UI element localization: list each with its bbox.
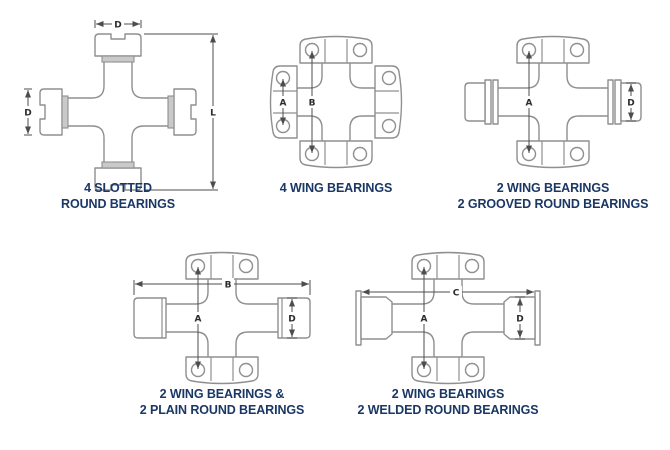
groove-ring: [608, 80, 613, 124]
weld-flange-left: [356, 291, 361, 345]
slotted-cup-right: [174, 89, 196, 135]
bolt-hole: [571, 44, 584, 57]
caption-line: 4 SLOTTED: [18, 180, 218, 196]
bolt-hole: [383, 120, 396, 133]
dim-label-cup-diameter: D: [516, 315, 523, 325]
bolt-hole: [466, 364, 479, 377]
drawing-4-slotted-round-bearings: D D L: [13, 17, 223, 195]
caption-4-wing-bearings: 4 WING BEARINGS: [236, 180, 436, 196]
groove-ring: [615, 80, 621, 124]
drawing-2-wing-2-plain-round-bearings: B A D: [117, 223, 327, 401]
figure-4-slotted-round-bearings: D D L: [13, 17, 223, 195]
plain-cup-left: [134, 298, 166, 338]
caption-line: 2 WELDED ROUND BEARINGS: [338, 402, 558, 418]
slotted-cup-left: [40, 89, 62, 135]
groove-ring: [485, 80, 491, 124]
cup-lip-top: [102, 56, 134, 62]
cup-lip-right: [168, 96, 174, 128]
dim-label-hole-span: A: [421, 315, 428, 325]
caption-line: ROUND BEARINGS: [18, 196, 218, 212]
dim-label-top-width: D: [114, 21, 121, 31]
dim-label-overall-length: L: [210, 109, 216, 119]
grooved-cup-left: [465, 83, 485, 121]
weld-flange-right: [535, 291, 540, 345]
caption-line: 2 WING BEARINGS: [443, 180, 663, 196]
cross-body: [60, 54, 176, 170]
dim-label-vertical-span: B: [309, 99, 316, 109]
drawing-4-wing-bearings: A B: [231, 7, 441, 185]
caption-2-wing-2-grooved-round-bearings: 2 WING BEARINGS 2 GROOVED ROUND BEARINGS: [443, 180, 663, 212]
caption-2-wing-2-welded-round-bearings: 2 WING BEARINGS 2 WELDED ROUND BEARINGS: [338, 386, 558, 418]
caption-line: 2 WING BEARINGS &: [112, 386, 332, 402]
dim-label-cup-diameter: D: [288, 315, 295, 325]
welded-cup-left: [361, 297, 392, 339]
figure-4-wing-bearings: A B: [231, 7, 441, 185]
bolt-hole: [240, 260, 253, 273]
caption-line: 2 PLAIN ROUND BEARINGS: [112, 402, 332, 418]
bolt-hole: [354, 44, 367, 57]
figure-2-wing-2-grooved-round-bearings: A D: [448, 7, 658, 185]
dim-label-side-span: A: [280, 99, 287, 109]
caption-line: 2 GROOVED ROUND BEARINGS: [443, 196, 663, 212]
figure-2-wing-2-welded-round-bearings: C A D: [343, 223, 553, 401]
cup-lip-left: [62, 96, 68, 128]
drawing-2-wing-2-grooved-round-bearings: A D: [448, 7, 658, 185]
cup-lip-bottom: [102, 162, 134, 168]
caption-4-slotted-round-bearings: 4 SLOTTED ROUND BEARINGS: [18, 180, 218, 212]
figure-2-wing-2-plain-round-bearings: B A D: [117, 223, 327, 401]
bolt-hole: [240, 364, 253, 377]
dim-label-hole-span: A: [526, 99, 533, 109]
bolt-hole: [354, 148, 367, 161]
caption-line: 2 WING BEARINGS: [338, 386, 558, 402]
dim-label-side-diameter: D: [24, 109, 31, 119]
dim-label-cup-diameter: D: [627, 99, 634, 109]
bolt-hole: [571, 148, 584, 161]
bearing-types-diagram-sheet: D D L 4 SLOTTED ROUND BEARINGS: [0, 0, 670, 450]
bolt-hole: [383, 72, 396, 85]
dim-label-overall-width: C: [453, 289, 460, 299]
slotted-cup-top: [95, 34, 141, 56]
caption-2-wing-2-plain-round-bearings: 2 WING BEARINGS & 2 PLAIN ROUND BEARINGS: [112, 386, 332, 418]
caption-line: 4 WING BEARINGS: [236, 180, 436, 196]
dim-label-overall-width: B: [225, 281, 232, 291]
dim-label-hole-span: A: [195, 315, 202, 325]
drawing-2-wing-2-welded-round-bearings: C A D: [343, 223, 553, 401]
bolt-hole: [466, 260, 479, 273]
groove-ring: [493, 80, 498, 124]
